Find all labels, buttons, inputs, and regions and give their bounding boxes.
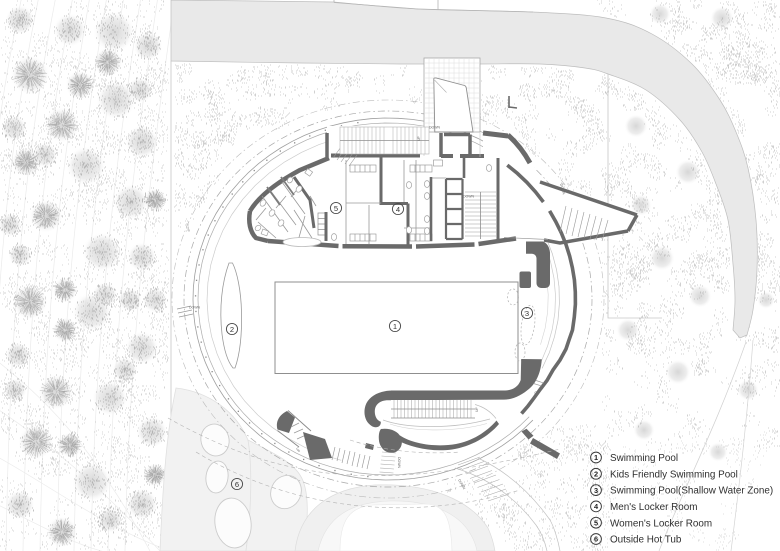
svg-text:2: 2	[594, 470, 598, 479]
svg-text:Kids Friendly Swimming Pool: Kids Friendly Swimming Pool	[610, 469, 738, 480]
svg-text:5: 5	[594, 518, 598, 527]
svg-text:6: 6	[594, 535, 598, 544]
svg-text:Outside Hot Tub: Outside Hot Tub	[610, 535, 682, 546]
svg-text:3: 3	[525, 309, 529, 318]
svg-text:Swimming Pool(Shallow Water Zo: Swimming Pool(Shallow Water Zone)	[610, 486, 773, 497]
svg-text:UP: UP	[417, 135, 421, 141]
svg-text:6: 6	[235, 480, 239, 489]
svg-text:Men's Locker Room: Men's Locker Room	[610, 502, 698, 513]
svg-text:1: 1	[393, 322, 397, 331]
svg-text:2: 2	[230, 325, 234, 334]
svg-text:DOWN: DOWN	[397, 457, 401, 469]
svg-text:DOWN: DOWN	[429, 126, 441, 130]
svg-text:UP: UP	[475, 406, 479, 412]
svg-text:Swimming Pool: Swimming Pool	[610, 453, 678, 464]
svg-text:3: 3	[594, 486, 598, 495]
svg-text:1: 1	[594, 453, 598, 462]
svg-text:4: 4	[396, 205, 400, 214]
svg-text:Women's Locker Room: Women's Locker Room	[610, 518, 712, 529]
svg-text:DOWN: DOWN	[463, 195, 475, 199]
svg-text:5: 5	[334, 204, 338, 213]
svg-text:DOWN: DOWN	[189, 306, 201, 310]
